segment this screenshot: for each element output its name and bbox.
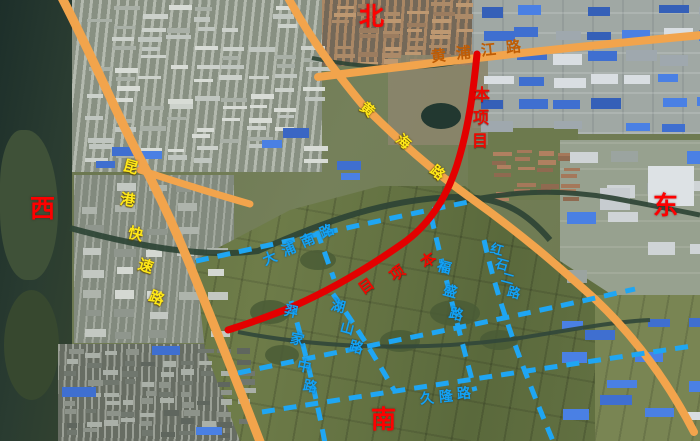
road-label-char: 隆 [438, 389, 453, 404]
compass-west: 西 [30, 196, 55, 221]
road-label-char: 路 [505, 39, 522, 55]
road-label-char: 路 [302, 379, 319, 396]
road-label-char: 项 [387, 263, 408, 284]
road-label-char: 目 [472, 133, 488, 149]
road-labels-layer: 昆港快速路黄浦江路黄海路本项目本项目大浦南路湖山路羿家中路福盛路红石二路久隆路 [0, 0, 700, 441]
road-label-char: 黄 [357, 100, 377, 120]
road-label-char: 湖 [329, 298, 346, 315]
project-location-map: 昆港快速路黄浦江路黄海路本项目本项目大浦南路湖山路羿家中路福盛路红石二路久隆路 … [0, 0, 700, 441]
road-label-char: 中 [296, 359, 313, 376]
road-label-char: 大 [261, 250, 279, 268]
compass-south: 南 [371, 407, 396, 432]
road-label-char: 项 [473, 110, 489, 126]
road-label-char: 港 [119, 192, 136, 209]
road-label-char: 江 [480, 42, 497, 58]
road-label-char: 昆 [121, 158, 140, 177]
road-label-char: 羿 [283, 304, 300, 321]
road-label-char: 红 [488, 242, 504, 258]
compass-east: 东 [653, 193, 678, 218]
compass-north: 北 [359, 4, 384, 29]
road-label-char: 目 [356, 276, 377, 297]
road-label-char: 本 [474, 87, 490, 103]
road-label-char: 路 [505, 285, 521, 301]
road-label-char: 福 [435, 259, 452, 276]
road-label-char: 海 [393, 132, 413, 152]
road-label-char: 浦 [455, 45, 472, 61]
road-label-char: 家 [289, 332, 306, 349]
road-label-char: 黄 [430, 48, 447, 64]
road-label-char: 路 [427, 163, 447, 183]
road-label-char: 快 [126, 225, 144, 243]
road-label-char: 久 [419, 391, 434, 406]
road-label-char: 路 [447, 306, 464, 323]
road-label-char: 南 [299, 232, 317, 250]
road-label-char: 浦 [280, 241, 298, 259]
road-label-char: 路 [318, 223, 336, 241]
road-label-char: 路 [146, 288, 166, 308]
road-label-char: 路 [456, 386, 471, 401]
road-label-char: 本 [418, 250, 439, 271]
road-label-char: 路 [347, 339, 364, 356]
road-label-char: 山 [338, 320, 355, 337]
road-label-char: 盛 [441, 283, 458, 300]
road-label-char: 速 [136, 257, 155, 276]
